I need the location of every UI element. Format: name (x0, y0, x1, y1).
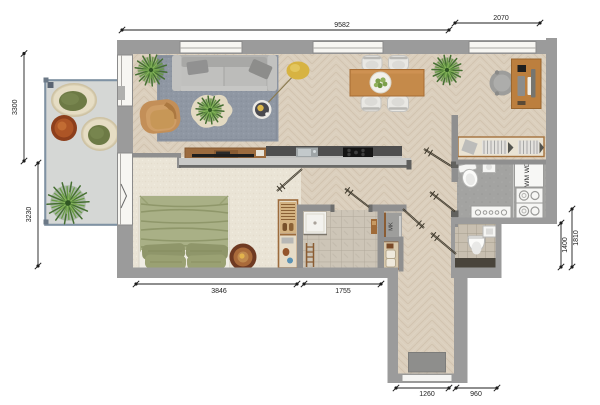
svg-text:1400: 1400 (562, 237, 569, 253)
svg-text:960: 960 (470, 391, 482, 398)
svg-text:MK: MK (389, 222, 395, 231)
svg-text:1810: 1810 (573, 230, 580, 246)
svg-text:9582: 9582 (334, 22, 350, 29)
svg-text:WM WD: WM WD (524, 162, 531, 187)
svg-text:3300: 3300 (12, 99, 19, 115)
svg-text:3230: 3230 (26, 207, 33, 223)
svg-text:3846: 3846 (211, 288, 227, 295)
svg-text:1755: 1755 (335, 288, 351, 295)
svg-text:2070: 2070 (493, 15, 509, 22)
svg-text:1260: 1260 (419, 391, 435, 398)
